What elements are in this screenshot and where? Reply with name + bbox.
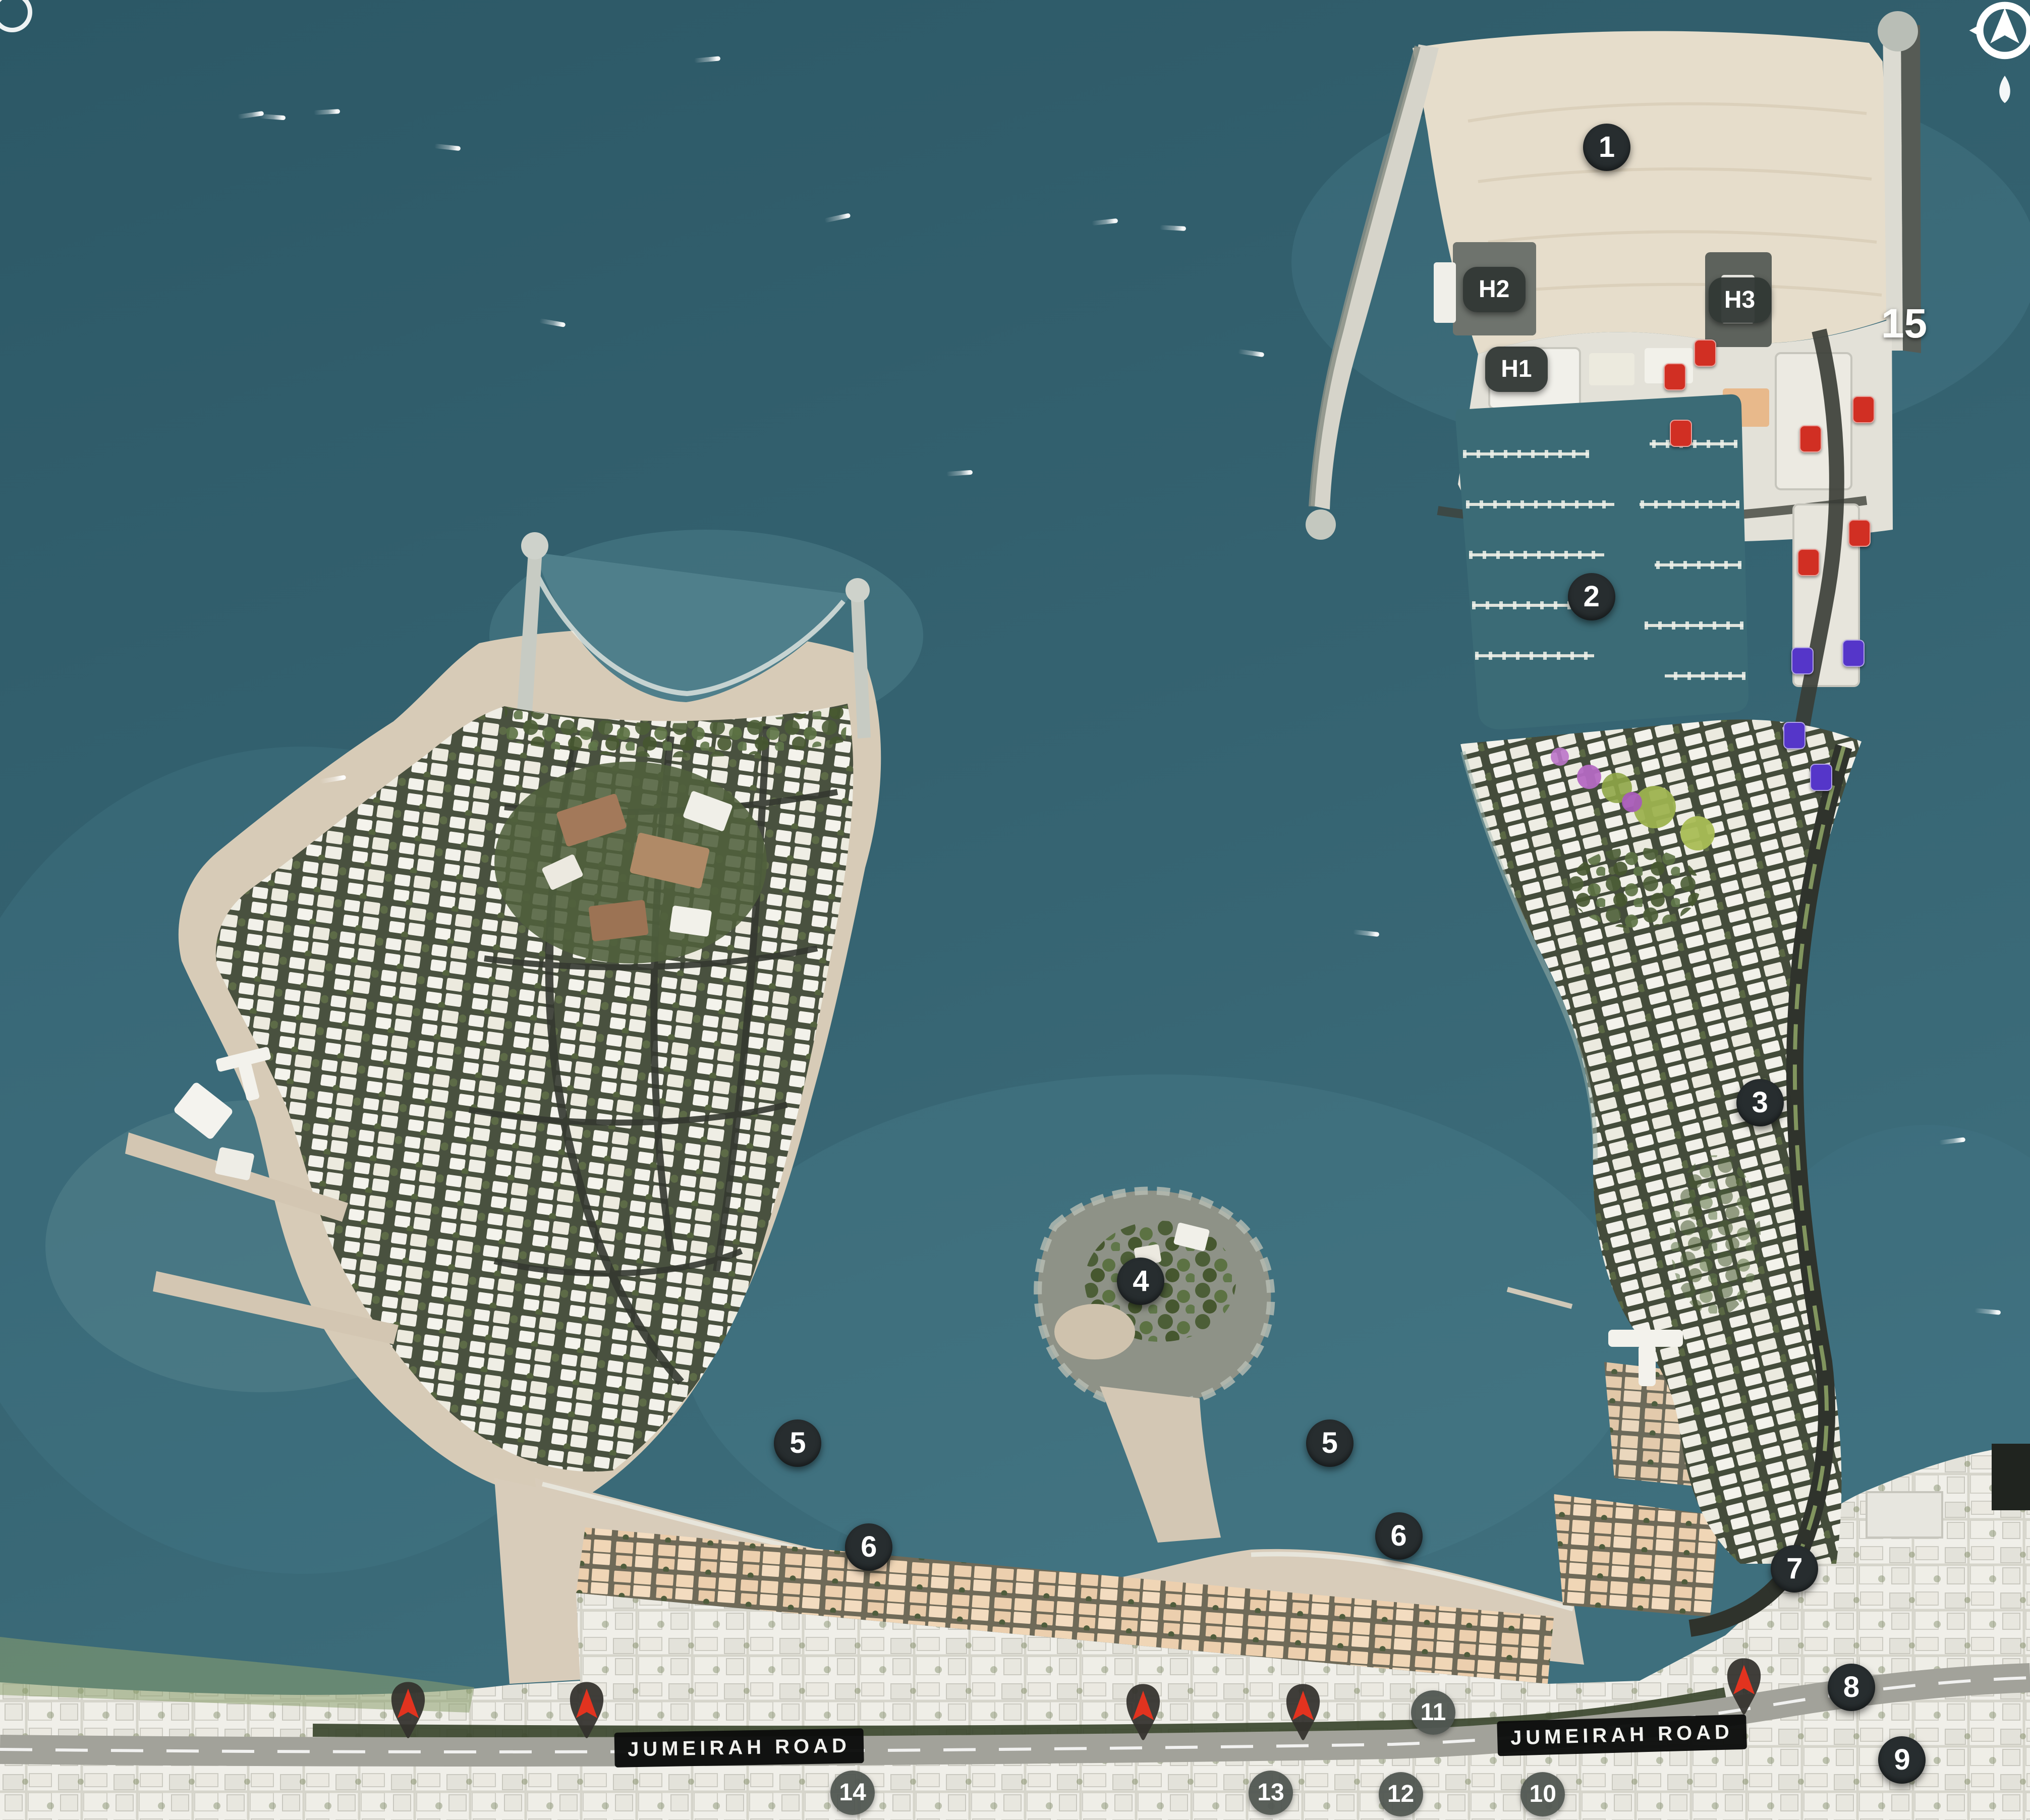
marker-5[interactable]: 5: [774, 1419, 821, 1467]
marker-14[interactable]: 14: [830, 1771, 875, 1815]
marker-h3[interactable]: H3: [1709, 277, 1771, 323]
compass-north-icon: [1964, 0, 2030, 121]
marker-2[interactable]: 2: [1568, 573, 1615, 620]
marker-7[interactable]: 7: [1771, 1545, 1818, 1592]
markers-layer: 12345566789101112131415H1H2H3: [0, 0, 2030, 1820]
road-label-jumeirah-west: JUMEIRAH ROAD: [614, 1729, 864, 1768]
marker-1[interactable]: 1: [1583, 124, 1630, 171]
road-label-jumeirah-east: JUMEIRAH ROAD: [1497, 1715, 1747, 1756]
marker-5[interactable]: 5: [1306, 1419, 1354, 1467]
marker-6[interactable]: 6: [845, 1523, 892, 1571]
marker-13[interactable]: 13: [1249, 1771, 1293, 1815]
marker-15[interactable]: 15: [1881, 303, 1927, 345]
marker-3[interactable]: 3: [1736, 1079, 1784, 1126]
marker-9[interactable]: 9: [1878, 1736, 1926, 1784]
marker-h1[interactable]: H1: [1485, 347, 1548, 392]
marker-6[interactable]: 6: [1375, 1512, 1423, 1560]
marker-h2[interactable]: H2: [1463, 267, 1526, 312]
marker-12[interactable]: 12: [1379, 1772, 1423, 1816]
marker-8[interactable]: 8: [1828, 1664, 1875, 1711]
masterplan-map: 12345566789101112131415H1H2H3 JUMEIRAH R…: [0, 0, 2030, 1820]
marker-4[interactable]: 4: [1117, 1258, 1164, 1305]
marker-10[interactable]: 10: [1520, 1772, 1565, 1816]
marker-11[interactable]: 11: [1411, 1690, 1455, 1735]
